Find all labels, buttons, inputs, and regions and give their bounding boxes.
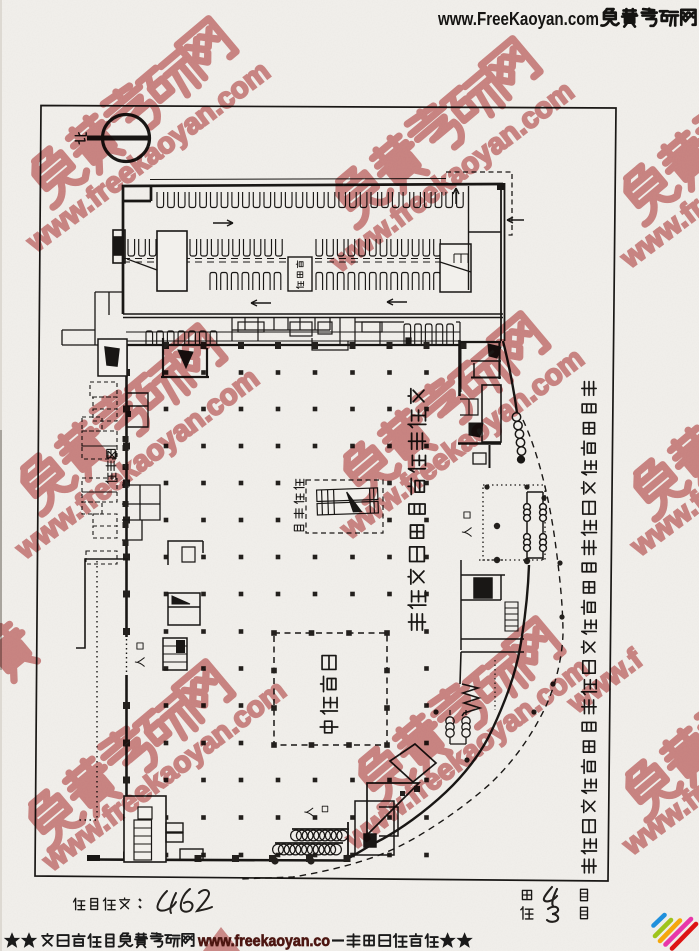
- svg-text:www.freekaoyan.co: www.freekaoyan.co: [197, 933, 330, 950]
- svg-text:www.FreeKaoyan.com: www.FreeKaoyan.com: [437, 9, 599, 29]
